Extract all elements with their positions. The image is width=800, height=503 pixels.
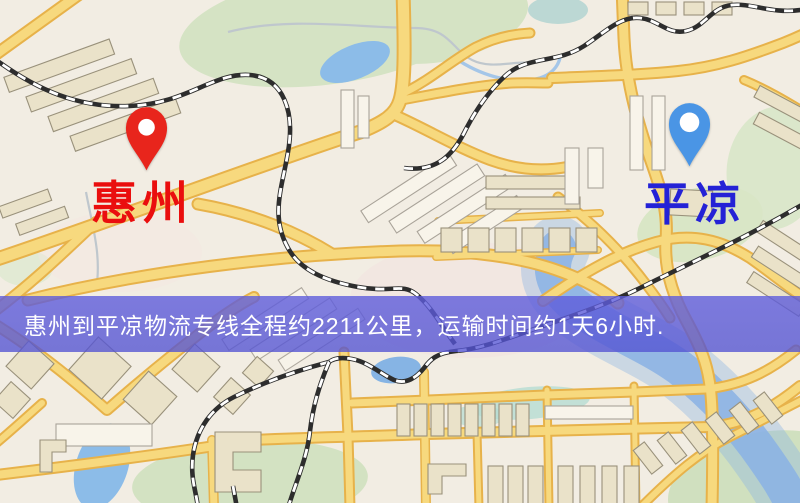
destination-marker[interactable] (666, 102, 713, 168)
logistics-route-map: 惠州 平凉 惠州到平凉物流专线全程约2211公里，运输时间约1天6小时. (0, 0, 800, 503)
route-info-banner: 惠州到平凉物流专线全程约2211公里，运输时间约1天6小时. (0, 296, 800, 352)
origin-city-label: 惠州 (91, 180, 193, 226)
route-info-text: 惠州到平凉物流专线全程约2211公里，运输时间约1天6小时. (24, 307, 664, 341)
origin-marker[interactable] (123, 106, 170, 172)
pin-body (126, 107, 167, 170)
destination-city-label: 平凉 (644, 181, 746, 227)
blue-pin-icon (666, 102, 713, 168)
map-canvas (0, 0, 800, 503)
red-pin-icon (123, 106, 170, 172)
